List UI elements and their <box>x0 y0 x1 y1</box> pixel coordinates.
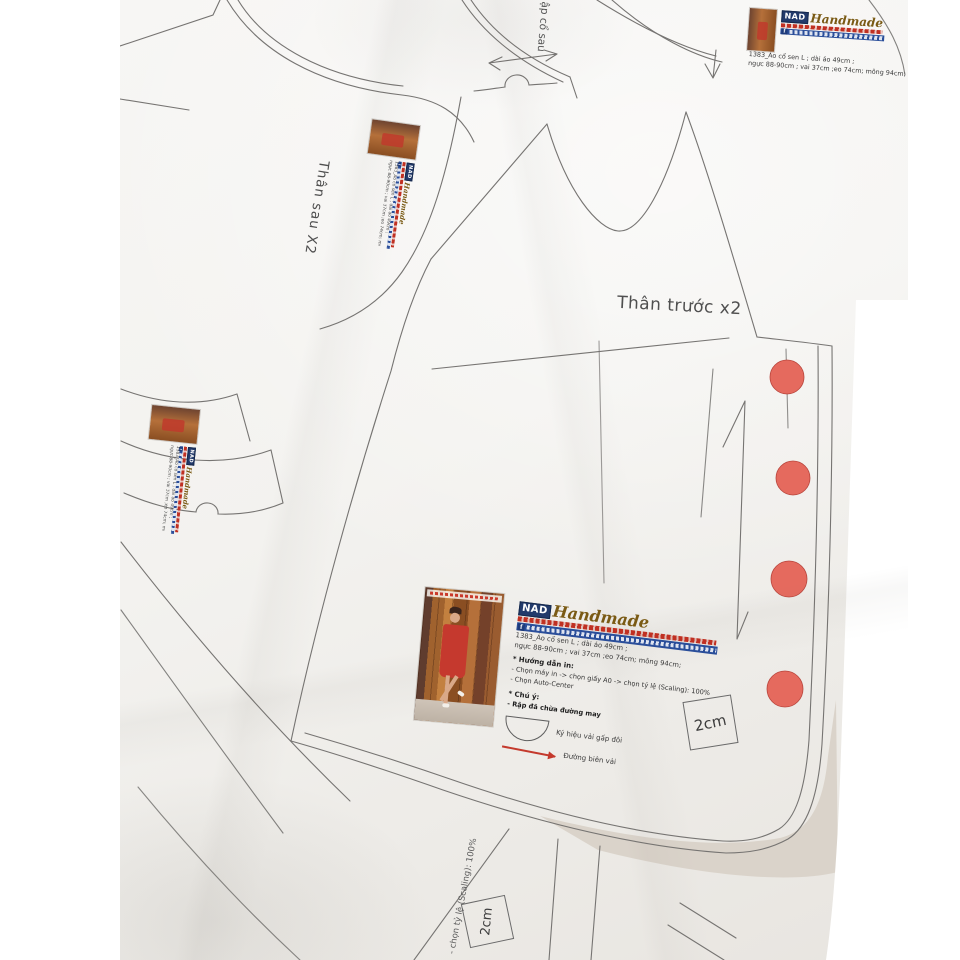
down-arrow <box>705 50 720 78</box>
scale-label: 2cm <box>693 710 728 734</box>
fold-notch-top <box>474 75 557 91</box>
facebook-icon: f <box>781 28 787 34</box>
button-dot <box>771 561 807 597</box>
pattern-lines-svg <box>120 0 908 960</box>
facebook-icon: f <box>179 447 183 451</box>
scale-test-square-rotated: 2cm <box>461 895 514 948</box>
pattern-photo-canvas: Thân trước x2 Thân sau X2 ập cổ sau NAD … <box>0 0 960 960</box>
brand-stamp-top-right: NAD Handmade f 1383_Áo cổ sen L ; dài áo… <box>746 8 908 80</box>
model-photo-thumbnail <box>368 119 420 159</box>
brand-logo: NAD Handmade f <box>779 10 883 59</box>
model-dress <box>438 623 469 678</box>
model-photo-thumbnail <box>747 8 777 52</box>
scale-label: 2cm <box>479 907 497 937</box>
fold-symbol-icon <box>503 715 549 743</box>
model-photo-thumbnail <box>149 405 200 444</box>
fold-symbol-label: Ký hiệu vải gấp đôi <box>556 729 623 745</box>
button-dot <box>770 360 804 394</box>
scale-test-square: 2cm <box>682 694 738 750</box>
model-head <box>449 612 460 623</box>
brand-initials: NAD <box>781 10 809 24</box>
sewing-pattern-photo: Thân trước x2 Thân sau X2 ập cổ sau NAD … <box>120 0 908 960</box>
button-dot <box>767 671 803 707</box>
button-dots <box>767 360 810 707</box>
grain-arrow <box>723 401 748 639</box>
instruction-text-column: NAD Handmade f 1383_Áo cổ sen L ; dài áo… <box>501 597 718 776</box>
model-photo <box>414 587 504 726</box>
button-dot <box>776 461 810 495</box>
paper-edge-highlight <box>826 300 908 960</box>
